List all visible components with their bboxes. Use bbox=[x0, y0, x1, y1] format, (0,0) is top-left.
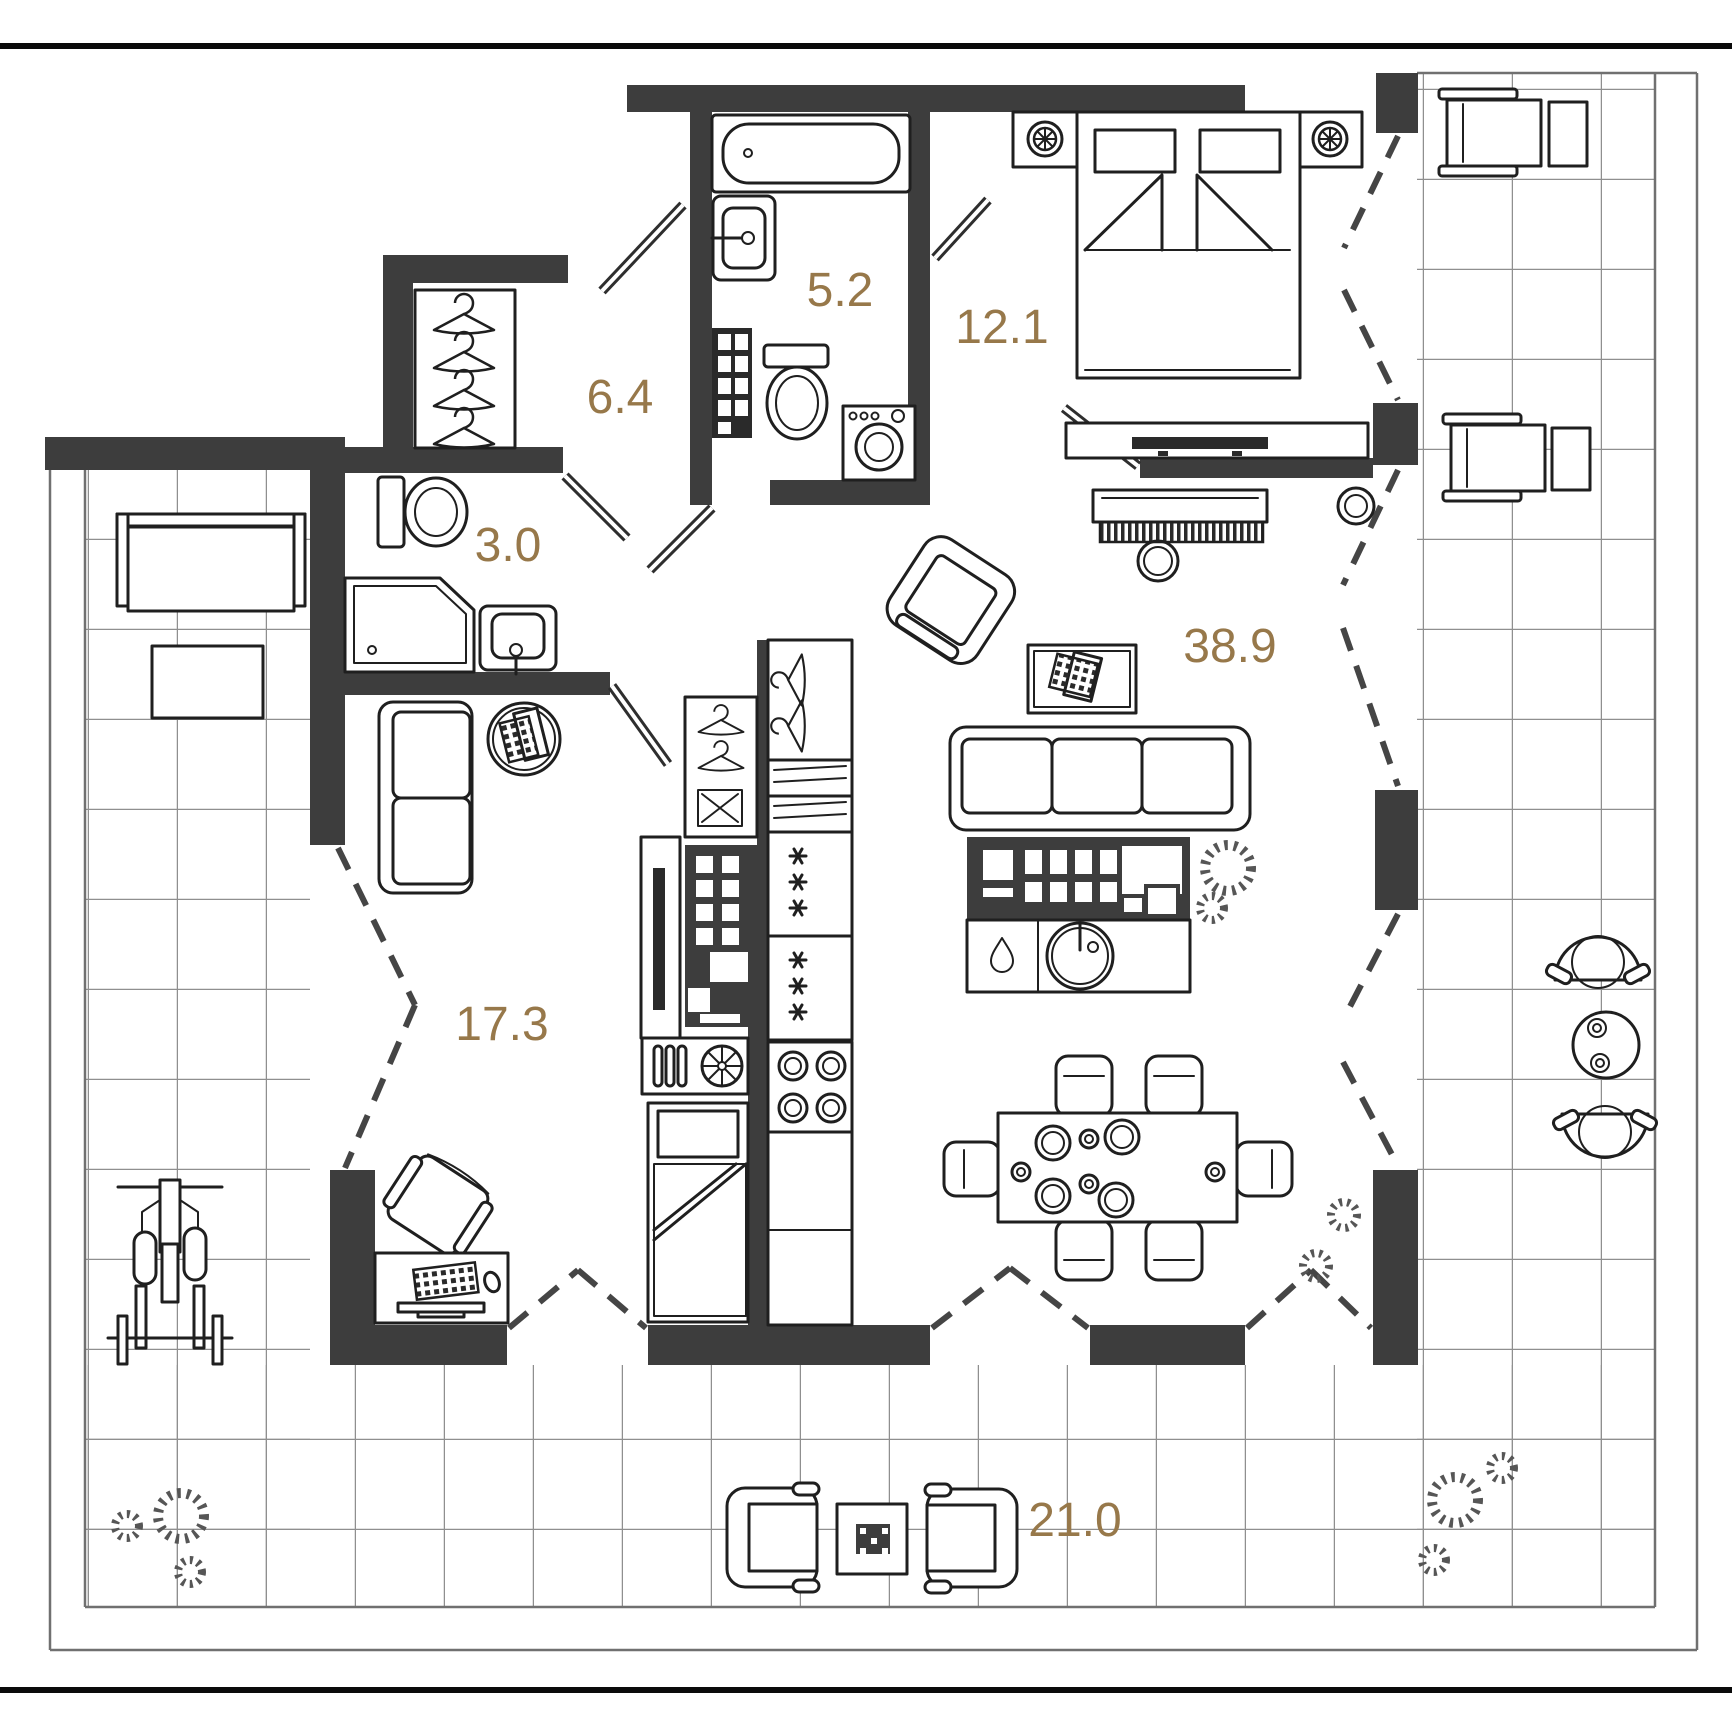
kitchen-island bbox=[967, 837, 1190, 992]
shower-corner bbox=[345, 578, 474, 672]
storage-unit bbox=[685, 845, 757, 1027]
washing-machine bbox=[843, 406, 915, 480]
room-wardrobe bbox=[685, 697, 757, 837]
washbasin-2 bbox=[480, 606, 556, 674]
toilet bbox=[764, 345, 828, 439]
commode-fan bbox=[642, 1038, 748, 1094]
toilet-2 bbox=[378, 477, 467, 547]
sofa bbox=[950, 727, 1250, 830]
desk bbox=[375, 1253, 508, 1323]
plant-icon bbox=[1200, 896, 1224, 920]
dining-set bbox=[944, 1056, 1292, 1280]
outdoor-bench bbox=[117, 514, 305, 611]
plant-icon bbox=[1205, 845, 1251, 891]
coffee-table bbox=[1028, 645, 1136, 713]
area-label-terrace: 21.0 bbox=[1028, 1494, 1121, 1547]
washbasin bbox=[712, 196, 775, 280]
room-door bbox=[612, 686, 668, 764]
double-bed bbox=[1077, 112, 1300, 378]
tv-console bbox=[1093, 490, 1267, 542]
shower-wc bbox=[345, 477, 556, 674]
terrace-armchair-left bbox=[727, 1483, 819, 1592]
keyboard bbox=[413, 1262, 478, 1299]
lounger-side-table bbox=[1552, 428, 1590, 490]
area-label-living-kitchen: 38.9 bbox=[1183, 620, 1276, 673]
area-label-entry-hall: 6.4 bbox=[587, 371, 654, 424]
terrace-right bbox=[1417, 73, 1655, 1607]
entry-door bbox=[602, 205, 683, 291]
hall-wardrobe bbox=[415, 290, 515, 448]
single-bed bbox=[648, 1103, 748, 1322]
floor-plan-canvas: 5.2 12.1 6.4 3.0 38.9 17.3 21.0 bbox=[0, 0, 1732, 1732]
living-kitchen bbox=[768, 490, 1357, 1325]
armchair bbox=[879, 529, 1022, 671]
terrace-armchair-right bbox=[925, 1484, 1017, 1593]
bedroom-dresser-tv bbox=[1066, 423, 1368, 458]
nightstand-right bbox=[1298, 112, 1362, 167]
area-label-bedroom: 12.1 bbox=[955, 301, 1048, 354]
round-table bbox=[1573, 1012, 1639, 1078]
towel-rail bbox=[712, 328, 752, 438]
plant-icon bbox=[1331, 1202, 1357, 1228]
floor-plan: 5.2 12.1 6.4 3.0 38.9 17.3 21.0 bbox=[0, 0, 1732, 1732]
nightstand-left bbox=[1013, 112, 1077, 167]
area-label-shower-wc: 3.0 bbox=[475, 519, 542, 572]
wc-door bbox=[565, 476, 627, 538]
sofa-2 bbox=[379, 702, 472, 893]
terrace-side-table bbox=[837, 1504, 907, 1574]
bedroom-door bbox=[935, 200, 988, 258]
fridge bbox=[768, 832, 852, 1040]
bathroom-door bbox=[650, 508, 712, 570]
tv-sideboard bbox=[641, 837, 680, 1038]
bathtub bbox=[712, 115, 910, 192]
hob bbox=[768, 1042, 852, 1132]
area-label-bathroom: 5.2 bbox=[807, 264, 874, 317]
kitchen-counter bbox=[768, 1132, 852, 1325]
lounger-side-table bbox=[1549, 102, 1587, 166]
floor-lamp bbox=[1338, 488, 1374, 524]
side-table-round bbox=[488, 703, 560, 775]
pouf bbox=[1138, 541, 1178, 581]
outdoor-table bbox=[152, 646, 263, 718]
kitchen-column bbox=[768, 640, 852, 1325]
second-room bbox=[375, 697, 757, 1323]
area-label-second-room: 17.3 bbox=[455, 998, 548, 1051]
desk-chair bbox=[378, 1144, 501, 1262]
entry-hall bbox=[415, 290, 515, 448]
